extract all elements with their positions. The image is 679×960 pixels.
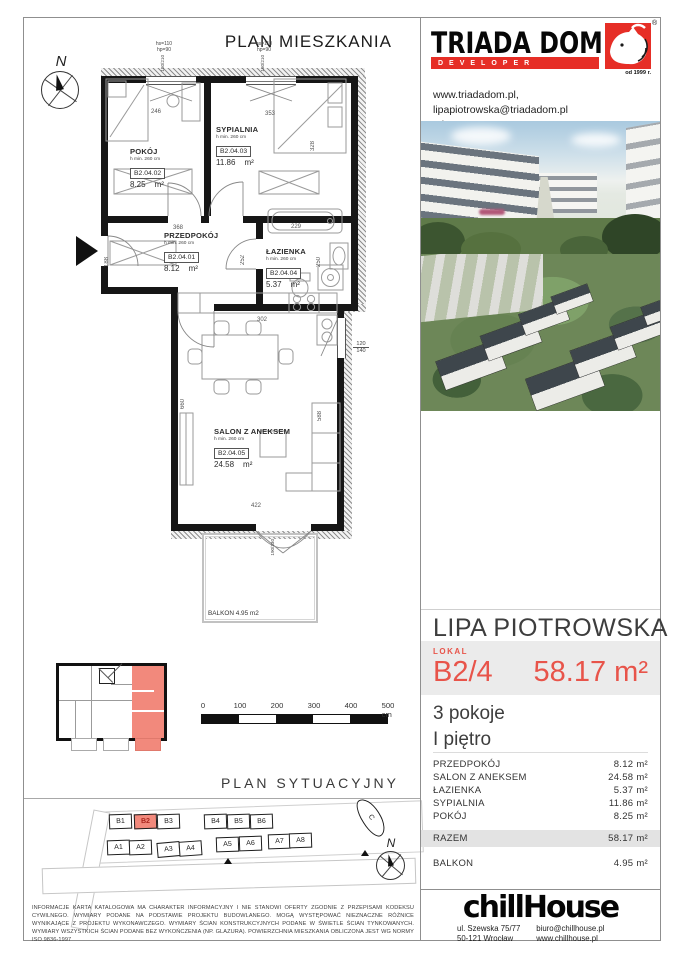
decor-cloud xyxy=(451,127,511,145)
room-label-salon: SALON Z ANEKSEM h min. 260 cm B2.04.05 2… xyxy=(214,427,290,469)
dimension-label: 250 xyxy=(316,257,322,267)
developer-tagline: DEVELOPER xyxy=(438,60,535,67)
balcony-door-size-label: 190/230 xyxy=(270,539,275,556)
site-block-b5: B5 xyxy=(227,814,251,830)
site-block-b1: B1 xyxy=(109,814,133,830)
area-name: SALON Z ANEKSEM xyxy=(433,772,527,783)
dimension-label: 246 xyxy=(136,109,176,115)
site-entrance-marker xyxy=(361,850,369,856)
developer-logo-text: TRIADA DOM xyxy=(431,26,603,60)
site-plan-title: PLAN SYTUACYJNY xyxy=(221,775,399,791)
since-label: od 1999 r. xyxy=(605,70,651,76)
scale-tick: 500 cm xyxy=(382,701,395,719)
site-block-b3: B3 xyxy=(157,814,181,830)
photo-street-view xyxy=(421,121,660,254)
registered-mark: ® xyxy=(652,20,657,27)
site-block-a4: A4 xyxy=(179,840,203,857)
area-row: PRZEDPOKÓJ8.12 m² xyxy=(421,759,660,770)
right-column: TRIADA DOM DEVELOPER ® od 1999 r. www.tr… xyxy=(420,18,660,940)
divider xyxy=(421,609,660,610)
bull-logo-icon xyxy=(605,23,651,69)
total-label: RAZEM xyxy=(433,833,468,844)
agency-website[interactable]: www.chillhouse.pl xyxy=(536,934,604,944)
site-block-a2: A2 xyxy=(129,840,153,856)
key-plan-line xyxy=(59,700,132,701)
divider xyxy=(433,752,648,753)
site-block-a6: A6 xyxy=(239,836,263,852)
site-compass-north-icon: N xyxy=(376,836,406,880)
window-note: hs=110hp=90 xyxy=(136,41,192,53)
decor-bush xyxy=(602,214,660,254)
site-block-b6: B6 xyxy=(250,814,274,830)
area-value: 8.25 m² xyxy=(614,811,648,822)
decor-building xyxy=(551,284,593,314)
photo-aerial-view xyxy=(421,254,660,411)
area-name: SYPIALNIA xyxy=(433,798,485,809)
area-row: POKÓJ8.25 m² xyxy=(421,811,660,822)
site-block-a1: A1 xyxy=(107,840,131,856)
room-label-przedpokoj: PRZEDPOKÓJ h min. 260 cm B2.04.01 8.12m² xyxy=(164,231,218,273)
decor-cloud xyxy=(571,133,621,147)
agency-logo-text: chillHouse xyxy=(421,890,660,925)
unit-total-area: 58.17 m² xyxy=(534,656,648,689)
site-entrance-marker xyxy=(224,858,232,864)
catalog-card: PLAN MIESZKANIA N xyxy=(23,17,661,941)
scale-tick: 0 xyxy=(201,701,205,710)
agency-contact: ul. Szewska 75/77 50-121 Wrocław biuro@c… xyxy=(457,924,604,944)
balcony-row: BALKON4.95 m² xyxy=(421,858,660,869)
compass-needle xyxy=(53,74,64,91)
scale-bar-segments xyxy=(201,714,388,724)
window-size-label: 180/210 xyxy=(160,55,165,72)
dimension-label: 422 xyxy=(236,503,276,509)
area-name: PRZEDPOKÓJ xyxy=(433,759,500,770)
key-plan-balcony-highlight xyxy=(135,738,161,751)
key-plan-line xyxy=(132,710,164,712)
highlighted-unit xyxy=(132,666,164,738)
rooms-count: 3 pokoje xyxy=(433,701,505,727)
floor-key-plan xyxy=(56,663,167,741)
area-value: 24.58 m² xyxy=(608,772,648,783)
compass-circle xyxy=(376,851,405,880)
dimension-label: 353 xyxy=(250,111,290,117)
room-label-lazienka: ŁAZIENKA h min. 260 cm B2.04.04 5.37m² xyxy=(266,247,306,289)
key-plan-balcony xyxy=(103,738,129,751)
project-name: LIPA PIOTROWSKA xyxy=(433,614,668,643)
area-name: ŁAZIENKA xyxy=(433,785,481,796)
developer-website[interactable]: www.triadadom.pl, xyxy=(433,88,575,103)
disclaimer-text: INFORMACJE KARTA KATALOGOWA MA CHARAKTER… xyxy=(32,904,414,945)
unit-summary: 3 pokoje I piętro xyxy=(433,701,505,752)
key-plan-line xyxy=(75,700,76,738)
balcony-label: BALKON xyxy=(433,858,473,869)
stairwell-icon xyxy=(99,668,115,684)
developer-email[interactable]: lipapiotrowska@triadadom.pl xyxy=(433,103,575,118)
key-plan-line xyxy=(111,684,132,685)
area-value: 11.86 m² xyxy=(609,798,648,809)
area-value: 8.12 m² xyxy=(614,759,648,770)
floor-plan: BALKON 4.95 m2 xyxy=(74,41,379,641)
key-plan-balcony xyxy=(71,738,97,751)
site-block-a8: A8 xyxy=(289,833,313,849)
unit-number: B2/4 xyxy=(433,656,493,689)
key-plan-line xyxy=(91,666,92,738)
area-row: SALON Z ANEKSEM24.58 m² xyxy=(421,772,660,783)
area-name: POKÓJ xyxy=(433,811,467,822)
scale-bar: 0 100 200 300 400 500 cm xyxy=(201,701,397,724)
balcony-value: 4.95 m² xyxy=(614,858,648,869)
scale-tick: 100 xyxy=(234,701,247,710)
dimension-label: 660 xyxy=(180,399,186,409)
site-block-b4: B4 xyxy=(204,814,228,830)
area-value: 5.37 m² xyxy=(614,785,648,796)
floor-level: I piętro xyxy=(433,727,505,753)
room-label-sypialnia: SYPIALNIA h min. 260 cm B2.04.03 11.86m² xyxy=(216,125,258,167)
total-row: RAZEM58.17 m² xyxy=(421,830,660,847)
compass-label: N xyxy=(376,836,406,850)
scale-tick: 400 xyxy=(345,701,358,710)
room-label-pokoj: POKÓJ h min. 260 cm B2.04.02 8.25m² xyxy=(130,147,165,189)
area-row: SYPIALNIA11.86 m² xyxy=(421,798,660,809)
key-plan-line xyxy=(132,690,154,692)
scale-tick: 300 xyxy=(308,701,321,710)
agency-links: biuro@chillhouse.pl www.chillhouse.pl xyxy=(536,924,604,944)
window-note: hs=110hp=90 xyxy=(236,41,292,53)
area-row: ŁAZIENKA5.37 m² xyxy=(421,785,660,796)
side-window-size-label: 120140 xyxy=(353,341,369,355)
dimension-label: 252 xyxy=(240,255,246,265)
scale-tick: 200 xyxy=(271,701,284,710)
compass-needle xyxy=(385,854,393,867)
agency-email[interactable]: biuro@chillhouse.pl xyxy=(536,924,604,934)
left-column: PLAN MIESZKANIA N xyxy=(24,18,420,940)
dimension-label: 188 xyxy=(104,257,110,267)
dimension-label: 328 xyxy=(310,141,316,151)
agency-address: ul. Szewska 75/77 50-121 Wrocław xyxy=(457,924,520,944)
site-block-a5: A5 xyxy=(216,837,240,853)
site-block-a3: A3 xyxy=(156,841,180,858)
dimension-label: 588 xyxy=(317,411,323,421)
total-value: 58.17 m² xyxy=(608,833,648,844)
decor-flowers xyxy=(479,209,505,215)
dimension-label: 229 xyxy=(276,224,316,230)
unit-label: LOKAL xyxy=(433,647,468,656)
developer-tagline-bar: DEVELOPER xyxy=(431,57,599,69)
site-block-a7: A7 xyxy=(268,834,292,850)
window-size-label: 180/210 xyxy=(260,55,265,72)
dimension-label: 302 xyxy=(242,317,282,323)
site-block-b2-highlight: B2 xyxy=(134,814,158,830)
